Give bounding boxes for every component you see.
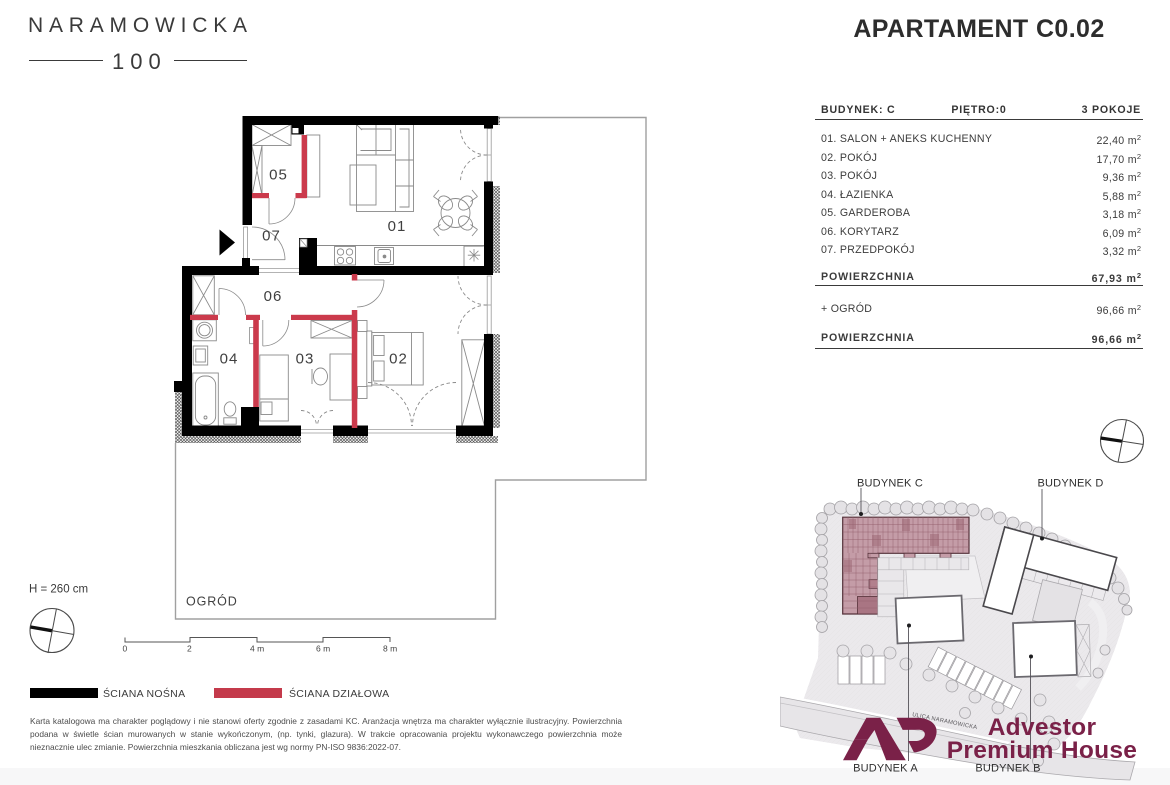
svg-text:02: 02 <box>389 351 408 368</box>
svg-text:BUDYNEK A: BUDYNEK A <box>853 763 918 775</box>
svg-text:01: 01 <box>388 218 407 235</box>
svg-text:04: 04 <box>220 351 239 368</box>
svg-text:6 m: 6 m <box>316 644 330 654</box>
svg-text:03: 03 <box>296 351 315 368</box>
svg-text:4 m: 4 m <box>250 644 264 654</box>
svg-text:BUDYNEK C: BUDYNEK C <box>857 478 923 490</box>
svg-text:8 m: 8 m <box>383 644 397 654</box>
svg-text:OGRÓD: OGRÓD <box>186 594 238 609</box>
svg-text:2: 2 <box>187 644 192 654</box>
svg-text:07: 07 <box>262 228 281 245</box>
svg-text:H = 260 cm: H = 260 cm <box>29 584 88 596</box>
svg-text:05: 05 <box>269 167 288 184</box>
svg-text:06: 06 <box>264 288 283 305</box>
svg-text:BUDYNEK D: BUDYNEK D <box>1038 478 1104 490</box>
svg-text:0: 0 <box>123 644 128 654</box>
